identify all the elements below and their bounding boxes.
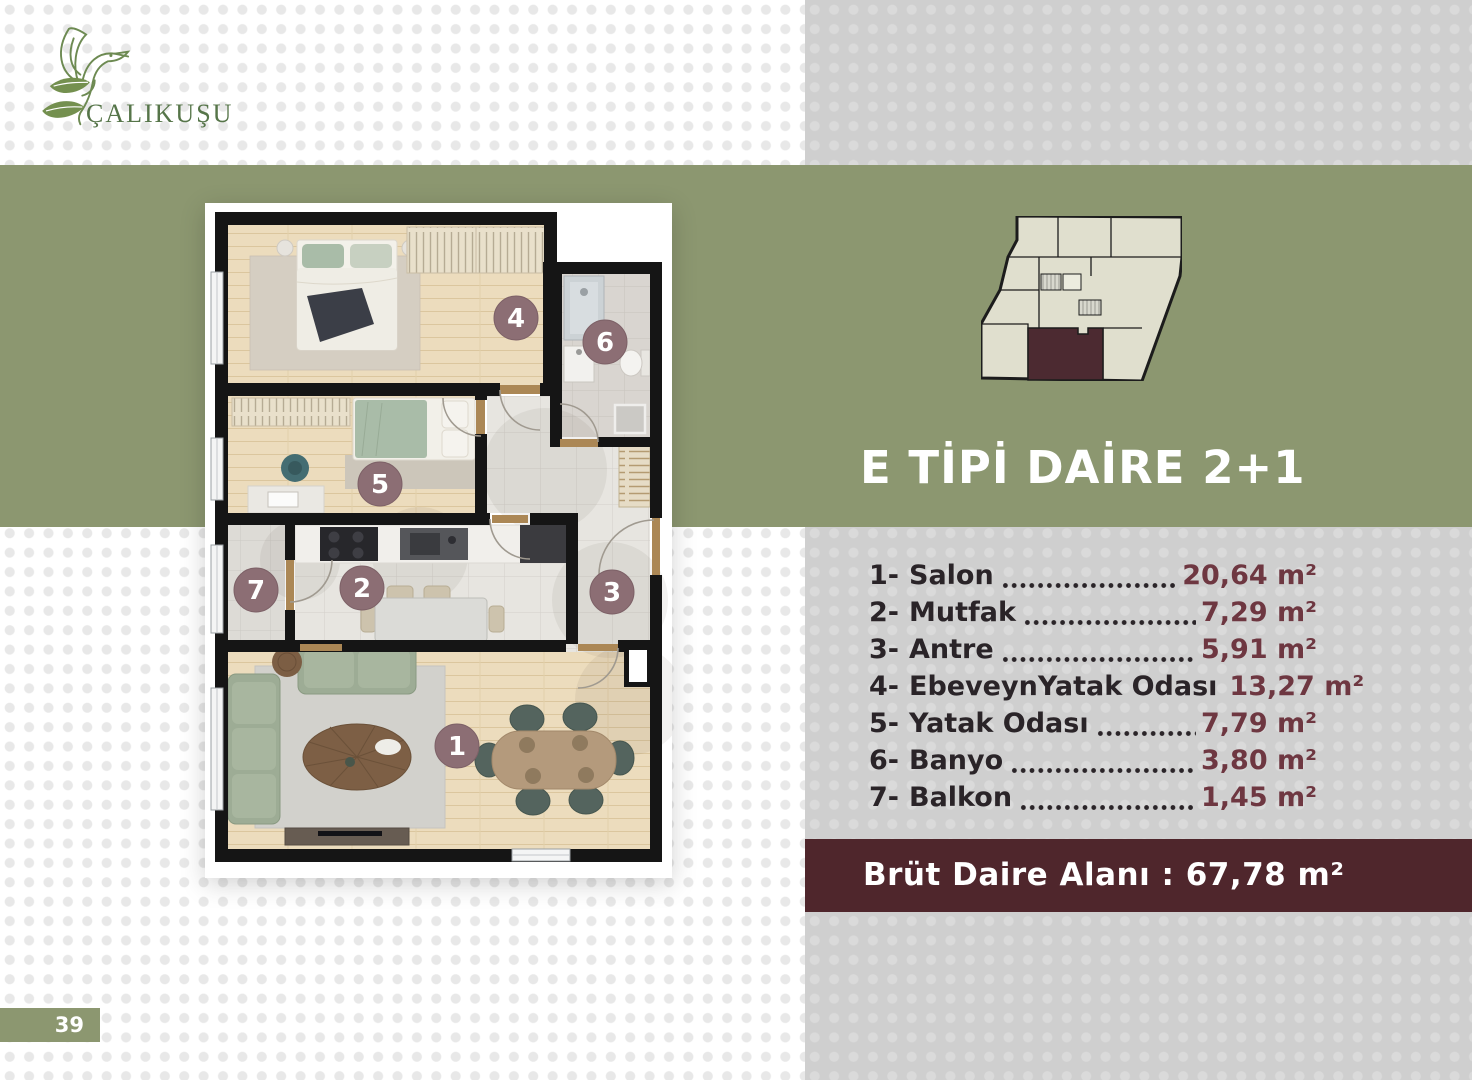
room-name: Mutfak (909, 597, 1016, 628)
area-row: 1- Salon 20,64 m² (869, 560, 1317, 597)
badge-6-number: 6 (596, 328, 614, 358)
highlighted-unit (1028, 328, 1103, 380)
room-name: Salon (909, 560, 994, 591)
room-name: EbeveynYatak Odası (909, 671, 1217, 702)
tv-console (285, 828, 409, 845)
plant (345, 757, 355, 767)
room-area: 20,64 m² (1182, 560, 1317, 591)
pillow (442, 430, 468, 457)
building-footprint (981, 216, 1182, 381)
dot-leader (1096, 728, 1196, 738)
sink-basin (410, 533, 440, 555)
brochure-page: ÇALIKUŞU (0, 0, 1472, 1080)
desk-chair-seat (288, 461, 302, 475)
pillow (350, 244, 392, 268)
badge-1-number: 1 (448, 732, 466, 762)
stairs (1041, 274, 1061, 290)
gross-area-bar: Brüt Daire Alanı : 67,78 m² (805, 839, 1472, 912)
room-number: 2- (869, 597, 909, 628)
page-number: 39 (0, 1008, 100, 1042)
room-area: 7,29 m² (1201, 597, 1317, 628)
area-row: 4- EbeveynYatak Odası 13,27 m² (869, 671, 1317, 708)
room-area: 1,45 m² (1201, 782, 1317, 813)
room-number: 1- (869, 560, 909, 591)
room-area: 7,79 m² (1201, 708, 1317, 739)
room-area: 3,80 m² (1201, 745, 1317, 776)
area-list: 1- Salon 20,64 m² 2- Mutfak 7,29 m² 3- A… (869, 560, 1317, 819)
kitchen-table (375, 598, 487, 642)
sofa-cushion (232, 774, 276, 818)
room-name: Yatak Odası (909, 708, 1089, 739)
shower-drain (580, 288, 588, 296)
gross-area-text: Brüt Daire Alanı : 67,78 m² (805, 839, 1472, 912)
badge-7-number: 7 (247, 576, 265, 606)
room-name: Antre (909, 634, 994, 665)
dining-table (492, 731, 616, 789)
area-row: 2- Mutfak 7,29 m² (869, 597, 1317, 634)
area-row: 7- Balkon 1,45 m² (869, 782, 1317, 819)
sofa-cushion (232, 682, 276, 724)
badge-5-number: 5 (371, 470, 389, 500)
bedroom-wardrobe (232, 398, 350, 426)
elevator (1063, 274, 1081, 290)
washing-machine (615, 405, 645, 433)
area-row: 3- Antre 5,91 m² (869, 634, 1317, 671)
stairs (1079, 300, 1101, 315)
room-number: 4- (869, 671, 909, 702)
brand-name: ÇALIKUŞU (86, 99, 233, 129)
laptop (268, 492, 298, 507)
building-footprint-diagram (981, 216, 1182, 381)
dot-leader (1019, 802, 1196, 812)
room-area: 5,91 m² (1201, 634, 1317, 665)
nightstand-left (277, 240, 293, 256)
tv (318, 831, 382, 836)
dot-leader (1023, 617, 1196, 627)
badge-4-number: 4 (507, 304, 525, 334)
room-area: 13,27 m² (1229, 671, 1364, 702)
bedroom-blanket (355, 400, 427, 458)
faucet (576, 349, 582, 355)
kitchen-cabinet (520, 525, 566, 563)
tray (375, 739, 401, 755)
room-name: Banyo (909, 745, 1003, 776)
shaft (629, 650, 647, 682)
room-name: Balkon (909, 782, 1012, 813)
page-number-badge: 39 (0, 1008, 100, 1042)
info-panel: E TİPİ DAİRE 2+1 1- Salon 20,64 m² 2- Mu… (805, 0, 1472, 1080)
floorplan: 1 2 3 4 5 6 7 (205, 203, 672, 878)
entry-closet (619, 445, 650, 507)
badge-2-number: 2 (353, 574, 371, 604)
badge-3-number: 3 (603, 578, 621, 608)
floorplan-drawing: 1 2 3 4 5 6 7 (205, 203, 672, 878)
room-number: 6- (869, 745, 909, 776)
dot-leader (1001, 580, 1178, 590)
sofa-cushion (232, 728, 276, 770)
room-number: 7- (869, 782, 909, 813)
room-number: 5- (869, 708, 909, 739)
room-number: 3- (869, 634, 909, 665)
sofa-cushion (358, 650, 410, 688)
logo: ÇALIKUŞU (38, 25, 238, 135)
cooktop (320, 527, 378, 561)
dot-leader (1010, 765, 1196, 775)
dot-leader (1001, 654, 1196, 664)
sofa-cushion (304, 650, 354, 688)
pillow (302, 244, 344, 268)
unit-title: E TİPİ DAİRE 2+1 (860, 441, 1306, 494)
area-row: 5- Yatak Odası 7,79 m² (869, 708, 1317, 745)
kitchen-faucet (448, 536, 456, 544)
area-row: 6- Banyo 3,80 m² (869, 745, 1317, 782)
